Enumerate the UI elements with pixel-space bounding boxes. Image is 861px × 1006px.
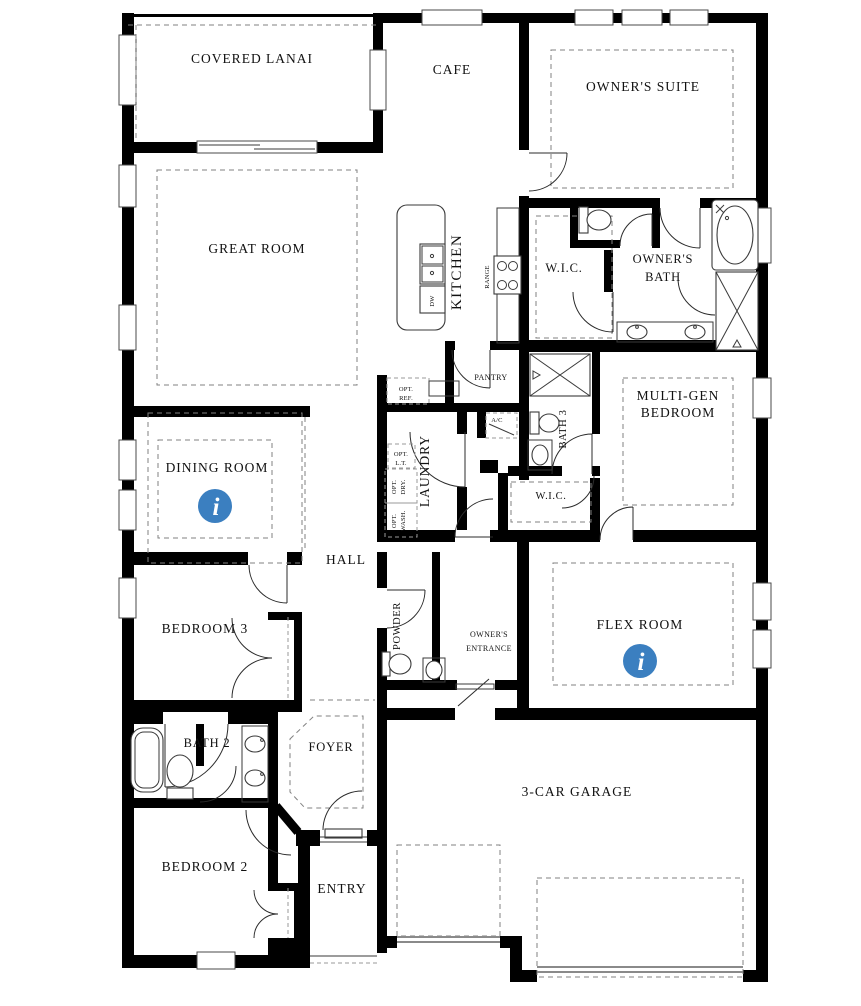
info-icon-dining-room[interactable]: i <box>198 489 232 523</box>
closet-door-bedroom3-lower <box>232 658 272 698</box>
label-range: RANGE <box>484 265 491 288</box>
room-label-owners-entrance-2: ENTRANCE <box>466 644 512 653</box>
window-dining-1 <box>119 440 136 480</box>
door-front-entry <box>323 791 362 830</box>
bath3-toilet <box>539 414 559 432</box>
dining-room-boundary <box>148 413 302 563</box>
garage-bay-2 <box>537 878 743 977</box>
room-label-owners-suite: OWNER'S SUITE <box>586 79 700 94</box>
room-label-owners-wic: W.I.C. <box>545 261 582 275</box>
window-great-room-2 <box>119 305 136 350</box>
window-dining-2 <box>119 490 136 530</box>
room-label-entry: ENTRY <box>317 881 366 896</box>
window-bedroom3 <box>119 578 136 618</box>
window-lanai-left <box>119 35 136 105</box>
label-dishwasher: DW <box>429 295 436 307</box>
room-label-bedroom2: BEDROOM 2 <box>162 859 249 874</box>
label-opt-ref-2: REF. <box>399 395 413 402</box>
floor-plan-canvas: COVERED LANAI CAFE OWNER'S SUITE GREAT R… <box>0 0 861 1006</box>
sliding-door-lanai <box>197 141 317 153</box>
label-opt-wash-2: WASH. <box>400 510 407 531</box>
door-owners-wic <box>573 292 613 332</box>
door-owners-suite <box>529 153 567 191</box>
bath3-sink <box>532 445 548 465</box>
garage-bay-1 <box>397 845 500 936</box>
room-label-bath2: BATH 2 <box>184 736 231 750</box>
great-room-boundary <box>157 170 357 385</box>
closet-door-bedroom2-lower <box>254 914 278 938</box>
owners-toilet <box>587 210 611 230</box>
room-label-kitchen: KITCHEN <box>449 234 465 310</box>
door-bedroom3 <box>249 565 287 603</box>
room-label-laundry: LAUNDRY <box>417 435 432 507</box>
owners-sink-1 <box>627 325 647 339</box>
closet-door-bedroom2-upper <box>254 890 278 914</box>
door-water-closet <box>620 214 652 246</box>
room-label-owners-bath-1: OWNER'S <box>633 252 694 266</box>
multi-gen-wic-boundary <box>511 482 591 522</box>
label-opt-dry-1: OPT. <box>391 480 398 494</box>
window-owners-suite-2 <box>622 10 662 25</box>
bath3-toilet-tank <box>530 412 539 434</box>
room-label-bath3: BATH 3 <box>558 410 569 449</box>
bath2-toilet <box>167 755 193 787</box>
powder-sink <box>426 661 442 679</box>
room-label-multi-gen-1: MULTI-GEN <box>637 388 720 403</box>
room-label-covered-lanai: COVERED LANAI <box>191 51 313 66</box>
label-opt-wash-1: OPT. <box>391 514 398 528</box>
door-bath2-compartment <box>200 766 236 802</box>
window-flex-1 <box>753 583 771 620</box>
owners-sink-2 <box>685 325 705 339</box>
room-label-flex-room: FLEX ROOM <box>597 617 684 632</box>
window-lanai-right <box>370 50 386 110</box>
info-icon-dining-glyph: i <box>213 494 220 521</box>
info-icon-flex-room[interactable]: i <box>623 644 657 678</box>
garage-doors <box>397 937 743 972</box>
label-opt-lt-1: OPT. <box>394 451 408 458</box>
range-box <box>494 256 521 294</box>
door-owners-bath <box>660 208 700 248</box>
label-opt-dry-2: DRY. <box>400 479 407 494</box>
door-owners-shower <box>678 278 715 315</box>
room-labels: COVERED LANAI CAFE OWNER'S SUITE GREAT R… <box>162 51 720 896</box>
info-icon-flex-glyph: i <box>638 649 645 676</box>
label-ac: A/C <box>491 417 502 424</box>
label-opt-ref-1: OPT. <box>399 386 413 393</box>
room-label-foyer: FOYER <box>309 740 354 754</box>
label-opt-lt-2: L.T. <box>395 460 407 467</box>
door-garage-entry <box>458 679 489 706</box>
room-label-multi-gen-2: BEDROOM <box>641 405 716 420</box>
door-multi-gen-wic <box>562 476 594 508</box>
room-label-multi-gen-wic: W.I.C. <box>536 491 567 502</box>
room-label-great-room: GREAT ROOM <box>208 241 305 256</box>
room-label-cafe: CAFE <box>433 62 472 77</box>
door-pantry <box>452 350 490 388</box>
window-flex-2 <box>753 630 771 668</box>
window-cafe <box>422 10 482 25</box>
room-label-powder: POWDER <box>392 602 403 650</box>
window-bedroom2 <box>197 952 235 969</box>
label-pantry: PANTRY <box>474 373 507 382</box>
door-multi-gen-bedroom <box>600 507 633 540</box>
powder-toilet <box>389 654 411 674</box>
window-great-room-1 <box>119 165 136 207</box>
room-label-bedroom3: BEDROOM 3 <box>162 621 249 636</box>
floor-plan-page: COVERED LANAI CAFE OWNER'S SUITE GREAT R… <box>0 0 861 1006</box>
window-owners-suite-3 <box>670 10 708 25</box>
kitchen-counter-2 <box>429 381 459 396</box>
owners-tub <box>717 206 753 264</box>
room-label-owners-entrance-1: OWNER'S <box>470 630 508 639</box>
room-label-dining-room: DINING ROOM <box>166 460 269 475</box>
room-label-owners-bath-2: BATH <box>645 270 681 284</box>
room-label-hall: HALL <box>326 552 366 567</box>
room-label-garage: 3-CAR GARAGE <box>522 784 633 799</box>
window-multi-gen <box>753 378 771 418</box>
bath2-toilet-tank <box>167 788 193 799</box>
window-owners-suite-1 <box>575 10 613 25</box>
garage-entry-threshold <box>456 684 494 689</box>
foyer-boundary <box>290 716 363 808</box>
owners-suite-boundary <box>551 50 733 188</box>
